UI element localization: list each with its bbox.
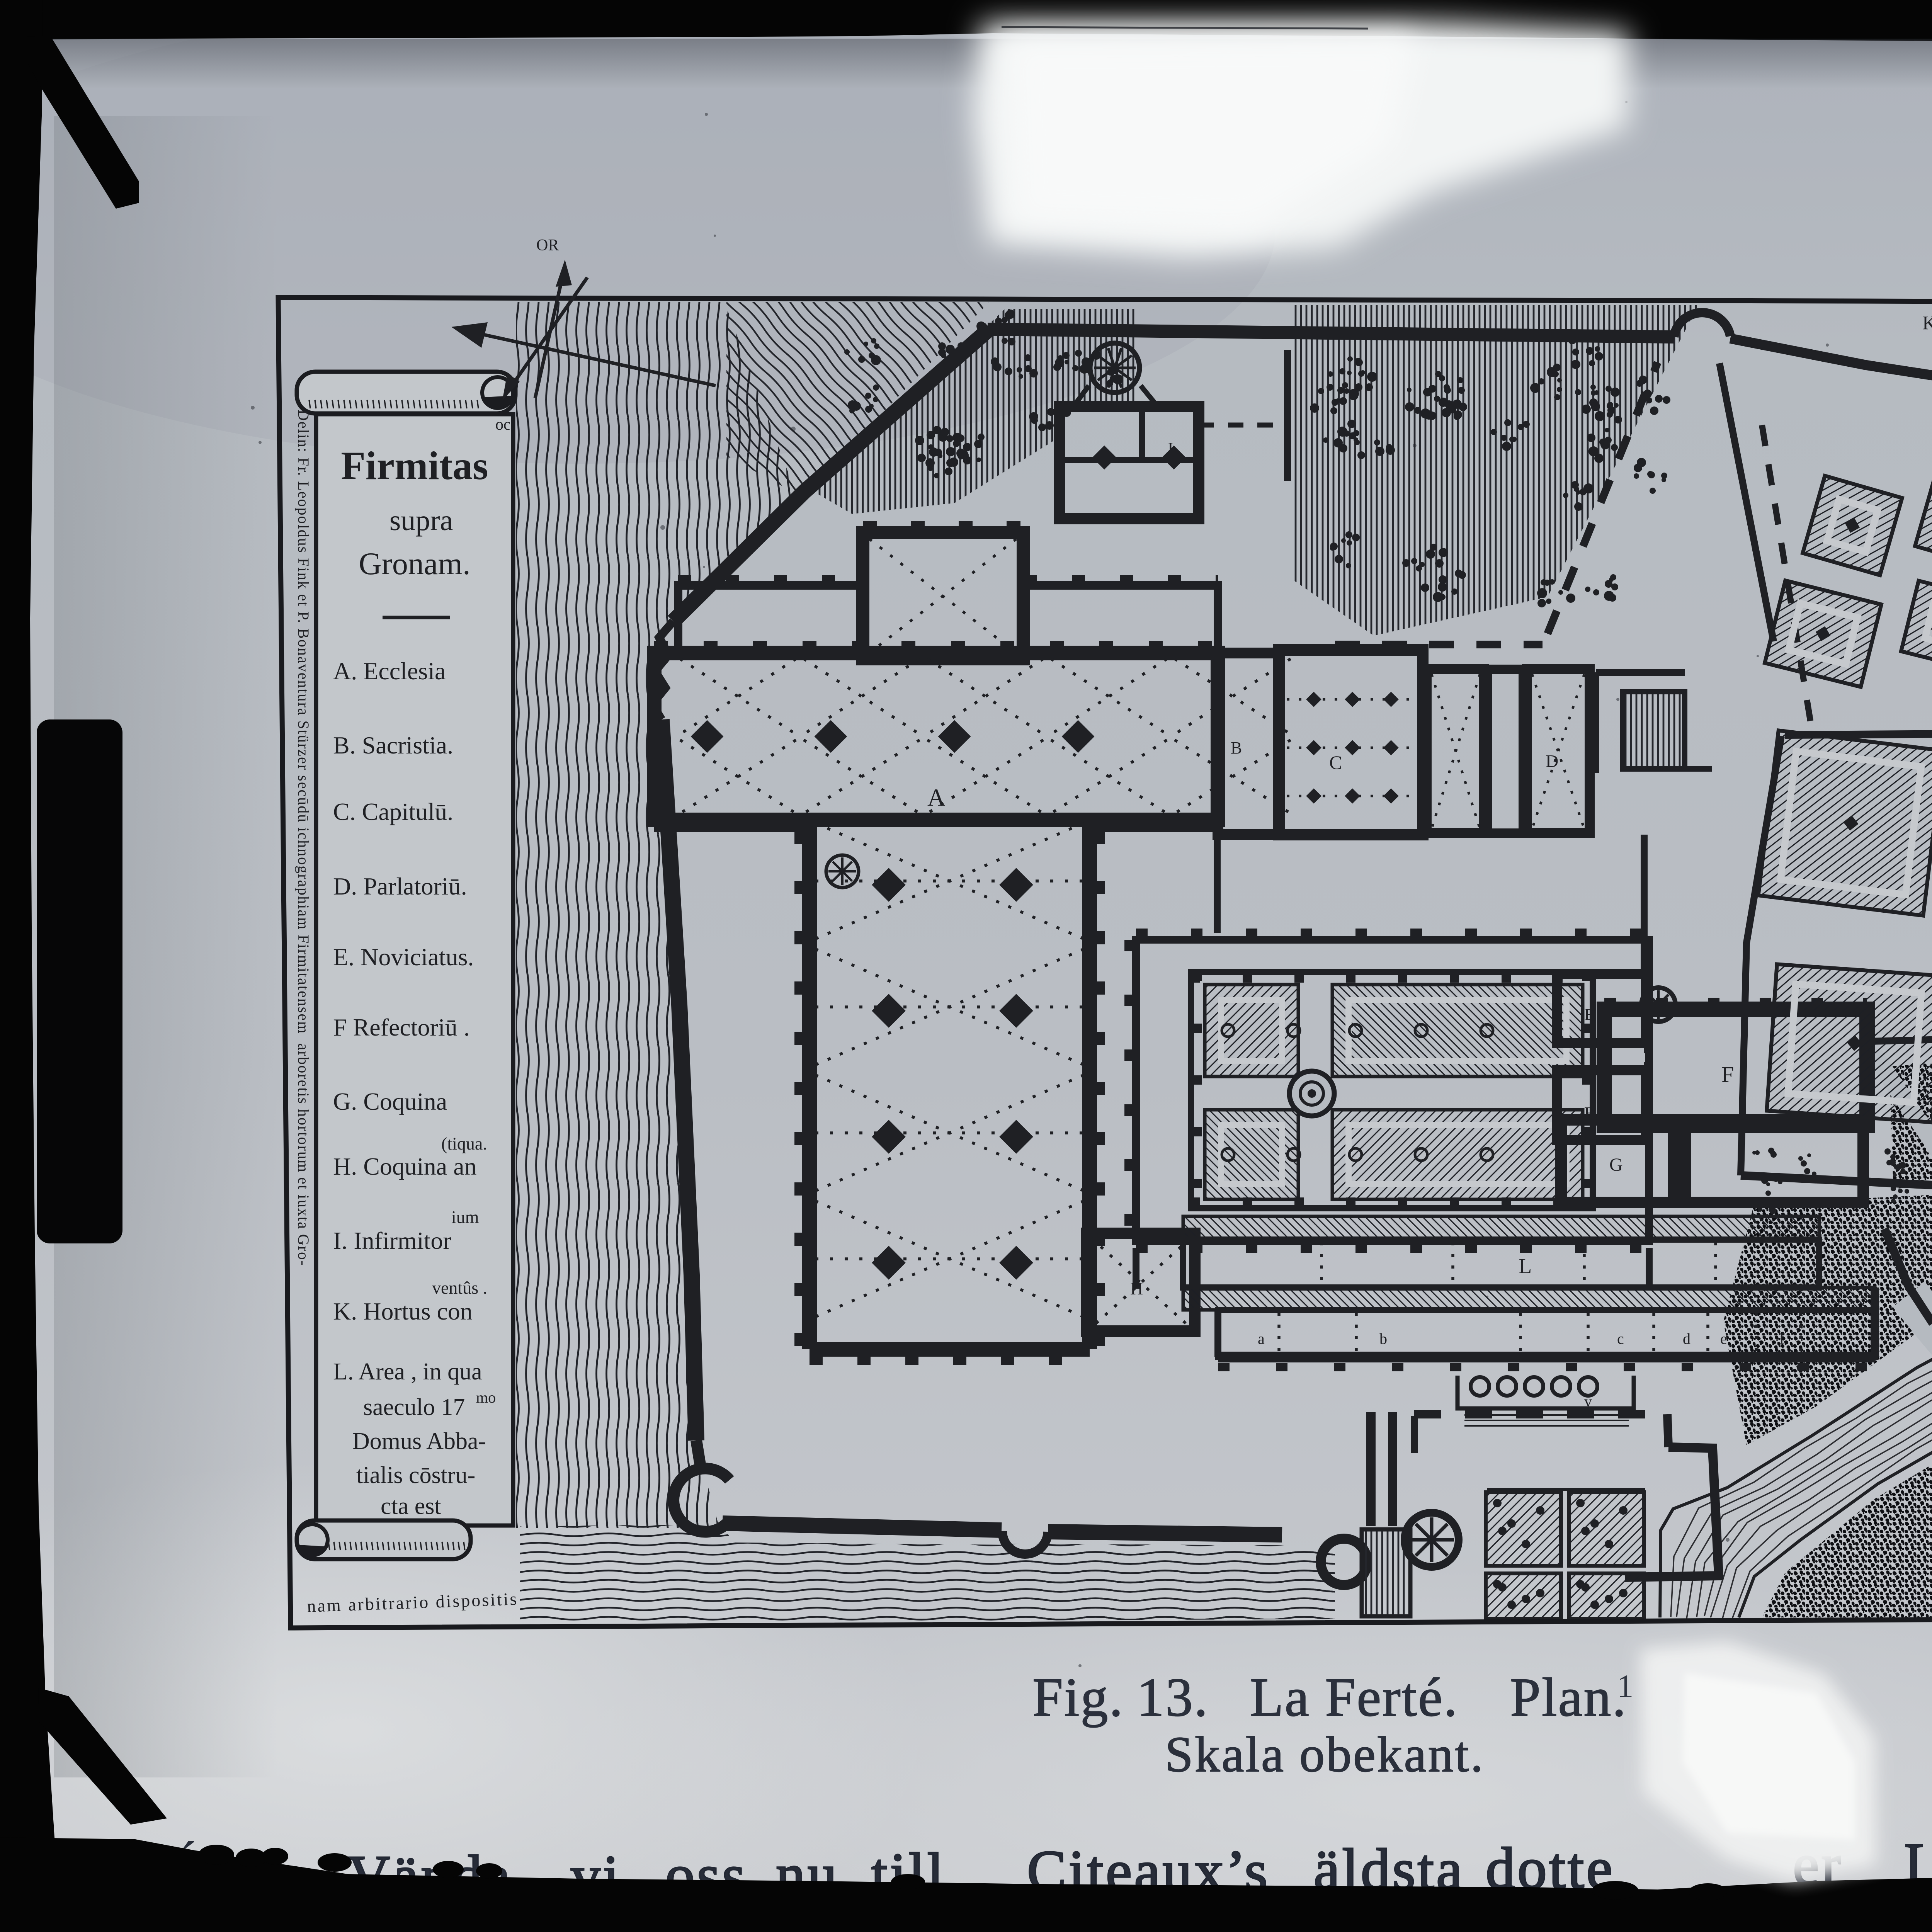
svg-text:G. Coquina: G. Coquina bbox=[333, 1088, 447, 1115]
svg-text:H. Coquina an: H. Coquina an bbox=[333, 1153, 477, 1180]
svg-text:b: b bbox=[1379, 1330, 1387, 1347]
svg-text:K: K bbox=[1922, 312, 1932, 333]
svg-text:mo: mo bbox=[476, 1389, 496, 1406]
svg-text:13.: 13. bbox=[1137, 1667, 1209, 1728]
svg-text:a: a bbox=[1258, 1330, 1265, 1347]
svg-text:OR: OR bbox=[536, 236, 559, 254]
svg-text:K. Hortus con: K. Hortus con bbox=[333, 1298, 473, 1325]
svg-text:D. Parlatoriū.: D. Parlatoriū. bbox=[333, 872, 467, 900]
svg-text:c: c bbox=[1617, 1330, 1624, 1347]
svg-text:Skala obekant.: Skala obekant. bbox=[1165, 1726, 1485, 1782]
svg-text:I: I bbox=[1168, 439, 1173, 458]
svg-text:Fig.: Fig. bbox=[1032, 1667, 1124, 1728]
svg-text:Gronam.: Gronam. bbox=[359, 546, 470, 581]
svg-text:B. Sacristia.: B. Sacristia. bbox=[333, 731, 453, 759]
svg-text:Delin: Fr. Leopoldus Fink et P: Delin: Fr. Leopoldus Fink et P. Bonavent… bbox=[295, 410, 312, 1266]
svg-text:E: E bbox=[1584, 1005, 1595, 1024]
svg-text:ium: ium bbox=[451, 1207, 479, 1227]
svg-text:v: v bbox=[1584, 1393, 1592, 1410]
svg-text:F Refectoriū .: F Refectoriū . bbox=[333, 1014, 470, 1041]
svg-text:1: 1 bbox=[1617, 1668, 1634, 1704]
svg-text:oc: oc bbox=[495, 416, 511, 434]
svg-text:F: F bbox=[1721, 1062, 1734, 1087]
svg-text:B: B bbox=[1231, 738, 1242, 757]
svg-text:cta est: cta est bbox=[381, 1493, 441, 1519]
svg-text:A. Ecclesia: A. Ecclesia bbox=[333, 657, 446, 685]
svg-text:L: L bbox=[1519, 1254, 1532, 1278]
svg-text:d: d bbox=[1683, 1330, 1690, 1347]
svg-text:A: A bbox=[927, 784, 945, 811]
svg-text:Plan.: Plan. bbox=[1510, 1667, 1627, 1728]
svg-text:saeculo 17: saeculo 17 bbox=[363, 1394, 465, 1420]
svg-text:ventûs .: ventûs . bbox=[432, 1278, 487, 1298]
svg-text:D: D bbox=[1546, 751, 1558, 771]
svg-text:Domus Abba-: Domus Abba- bbox=[352, 1428, 486, 1454]
svg-text:supra: supra bbox=[389, 504, 453, 537]
svg-text:I. Infirmitor: I. Infirmitor bbox=[333, 1227, 451, 1254]
svg-text:f: f bbox=[1779, 1330, 1785, 1347]
svg-text:C: C bbox=[1329, 752, 1342, 773]
svg-text:E. Noviciatus.: E. Noviciatus. bbox=[333, 943, 474, 971]
svg-text:e: e bbox=[1720, 1330, 1727, 1347]
svg-text:tialis cōstru-: tialis cōstru- bbox=[356, 1462, 475, 1488]
svg-text:Firmitas: Firmitas bbox=[341, 444, 488, 488]
svg-text:(tiqua.: (tiqua. bbox=[441, 1134, 487, 1153]
svg-text:G: G bbox=[1609, 1155, 1623, 1175]
svg-text:L. Area , in qua: L. Area , in qua bbox=[333, 1359, 482, 1385]
svg-text:C. Capitulū.: C. Capitulū. bbox=[333, 798, 453, 825]
svg-text:La Ferté.: La Ferté. bbox=[1250, 1667, 1459, 1728]
